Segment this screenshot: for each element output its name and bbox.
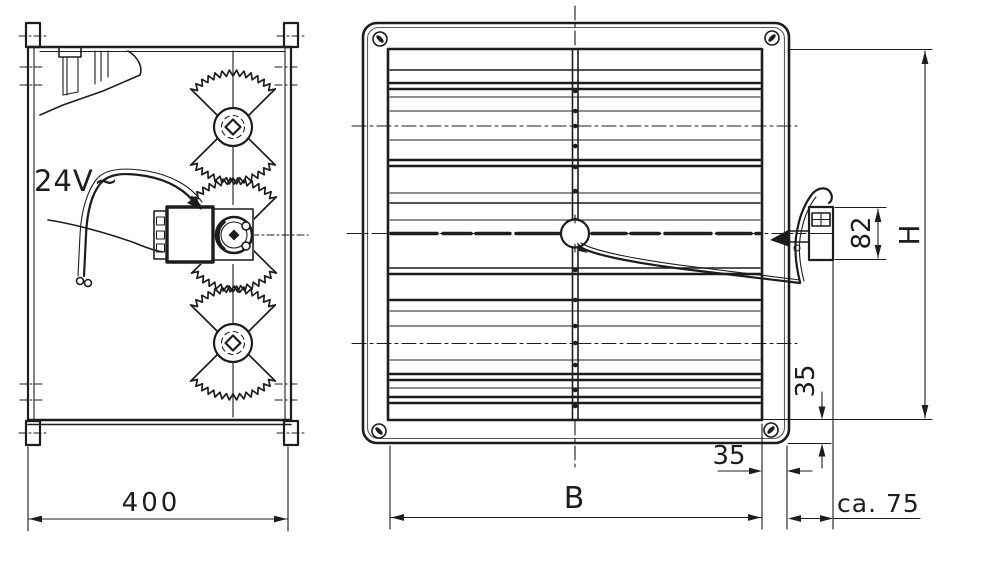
crank-arm <box>770 229 790 247</box>
side-view: 24V~ 400 <box>19 23 308 531</box>
wire-end <box>77 278 84 285</box>
dimension-35-bottom-label: 35 <box>712 441 745 471</box>
corner-screw <box>764 423 778 437</box>
linkage-rivet <box>573 268 578 273</box>
hub-screw <box>242 222 250 230</box>
wire-end <box>85 280 92 287</box>
linkage-rivet <box>573 324 578 329</box>
dimension-400: 400 <box>28 447 288 531</box>
dimension-400-label: 400 <box>122 488 181 518</box>
corner-screw <box>373 32 387 46</box>
wire-thin <box>48 220 163 252</box>
linkage-rivet <box>573 124 578 129</box>
linkage-rivet <box>573 363 578 368</box>
dimension-82-label: 82 <box>847 216 877 249</box>
dimension-35-side: 35 <box>788 364 831 468</box>
linkage-rivet <box>573 404 578 409</box>
dimension-H-label: H <box>893 224 926 245</box>
drive-cable <box>577 242 800 283</box>
linkage-rivet <box>573 388 578 393</box>
damper-technical-drawing: 24V~ 400 <box>0 0 1000 579</box>
linkage-rivet <box>573 298 578 303</box>
flange-tab <box>284 23 298 47</box>
linkage-rivet <box>573 341 578 346</box>
linkage-rivet <box>573 109 578 114</box>
motor-actuator <box>154 205 254 264</box>
corner-screw <box>765 31 779 45</box>
linkage-rivet <box>573 189 578 194</box>
frame-profile-section <box>40 47 141 115</box>
dimension-B: B <box>390 424 762 529</box>
center-linkage <box>561 49 589 420</box>
dimension-B-label: B <box>564 481 585 516</box>
linkage-rivet <box>573 89 578 94</box>
external-actuator <box>770 188 833 282</box>
dimension-ca75-label: ca. 75 <box>837 489 920 518</box>
drawing-canvas: 24V~ 400 <box>0 0 1000 579</box>
flange-tab <box>26 23 40 47</box>
corner-screw <box>372 424 386 438</box>
dimension-35-side-label: 35 <box>791 364 821 397</box>
linkage-rivet <box>573 144 578 149</box>
voltage-label: 24V~ <box>34 164 119 198</box>
front-view: B H 82 35 <box>347 6 932 529</box>
dimension-82: 82 <box>835 208 886 260</box>
drive-shaft-bearing <box>561 220 589 248</box>
hub-screw <box>242 242 250 250</box>
linkage-rivet <box>573 165 578 170</box>
